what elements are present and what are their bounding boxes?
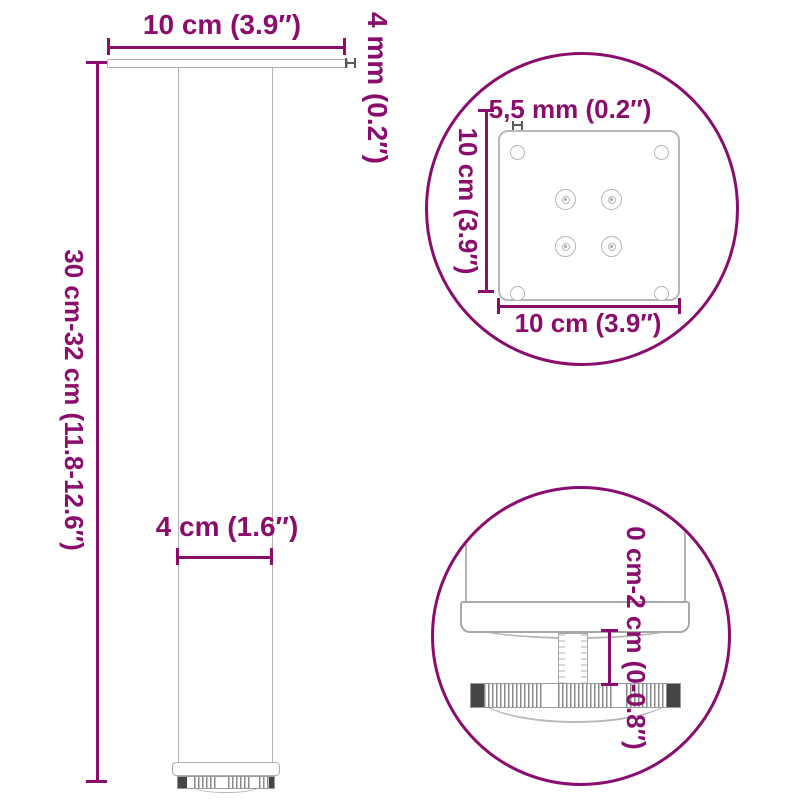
- height-label: 30 cm-32 cm (11.8-12.6″): [61, 249, 87, 551]
- plate-height-label: 10 cm (3.9″): [455, 128, 481, 275]
- screw-hole-inner: [562, 243, 570, 251]
- screw-hole-inner: [608, 196, 616, 204]
- dim-tick: [478, 109, 494, 112]
- screw-hole-dot: [564, 245, 567, 248]
- knurl-gap: [250, 777, 259, 788]
- plate-detail-circle: 5,5 mm (0.2″) 10 cm (3.9″) 10 cm (3.9″): [425, 52, 739, 366]
- screw-hole: [601, 236, 622, 257]
- adjustment-range-label: 0 cm-2 cm (0-0.8″): [623, 526, 649, 749]
- dim-tick: [678, 298, 681, 314]
- mounting-plate-side: [107, 59, 348, 68]
- top-width-dim-line: [108, 46, 345, 49]
- thickness-bracket-line: [345, 62, 356, 64]
- knurl-gap: [216, 777, 228, 788]
- diameter-dim-line: [177, 556, 273, 559]
- diameter-label: 4 cm (1.6″): [156, 513, 299, 541]
- dim-tick: [343, 38, 346, 55]
- leg-edge-line: [465, 489, 467, 603]
- table-leg-dimension-diagram: 10 cm (3.9″) 4 mm (0.2″) 30 cm-32 cm (11…: [0, 0, 800, 800]
- dim-tick: [107, 38, 110, 55]
- disc-ridges: [558, 684, 612, 707]
- hole-bracket-line: [512, 124, 523, 126]
- foot-knurl-band: [177, 776, 275, 789]
- screw-hole-inner: [608, 243, 616, 251]
- screw-hole: [555, 189, 576, 210]
- disc-ridges: [484, 684, 543, 707]
- knurl-ridges: [259, 777, 269, 788]
- foot-sleeve: [172, 762, 280, 776]
- dim-tick: [86, 780, 107, 783]
- disc-end-cap: [667, 684, 680, 707]
- dim-tick: [601, 629, 618, 632]
- plate-width-label: 10 cm (3.9″): [515, 310, 662, 336]
- disc-gap: [543, 684, 558, 707]
- height-dim-line: [96, 62, 99, 782]
- corner-hole: [654, 145, 669, 160]
- foot-sleeve-detail: [460, 601, 690, 633]
- hole-diameter-label: 5,5 mm (0.2″): [489, 96, 652, 122]
- leg-column: [178, 68, 273, 763]
- dim-tick: [497, 298, 500, 314]
- dim-tick: [270, 548, 273, 565]
- foot-detail-circle: 0 cm-2 cm (0-0.8″): [431, 486, 731, 786]
- disc-end-cap: [471, 684, 484, 707]
- knurl-ridges: [228, 777, 251, 788]
- screw-hole-dot: [610, 198, 613, 201]
- knurl-gap: [187, 777, 194, 788]
- top-width-label: 10 cm (3.9″): [143, 11, 301, 39]
- range-dim-line: [608, 630, 611, 686]
- knurl-end-cap: [178, 777, 187, 788]
- dim-tick: [176, 548, 179, 565]
- corner-hole: [654, 286, 669, 301]
- screw-hole: [555, 236, 576, 257]
- corner-hole: [510, 145, 525, 160]
- screw-hole-inner: [562, 196, 570, 204]
- mounting-plate-top-view: [498, 130, 680, 301]
- plate-thickness-label: 4 mm (0.2″): [363, 12, 391, 164]
- dim-tick: [601, 683, 618, 686]
- screw-hole-dot: [610, 245, 613, 248]
- dim-tick: [86, 61, 107, 64]
- plate-height-dim-line: [485, 110, 488, 293]
- screw-hole: [601, 189, 622, 210]
- knurl-end-cap: [269, 777, 274, 788]
- dim-tick: [478, 290, 494, 293]
- knurl-ridges: [194, 777, 217, 788]
- leg-edge-line: [684, 489, 686, 603]
- corner-hole: [510, 286, 525, 301]
- screw-hole-dot: [564, 198, 567, 201]
